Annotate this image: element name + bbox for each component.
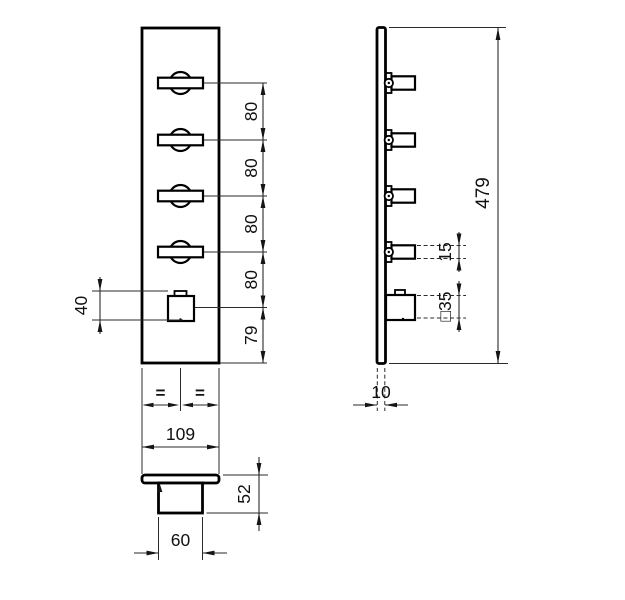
canvas-background — [0, 0, 625, 600]
dim-button-height: 40 — [71, 296, 91, 316]
knob-lever-side — [392, 189, 416, 202]
knob-lever — [158, 247, 203, 258]
knob-screw-dot — [388, 139, 390, 141]
dim-button-face: □35 — [435, 291, 455, 321]
knob-lever — [158, 191, 203, 202]
side-knob-4 — [385, 242, 415, 262]
side-knob-3 — [385, 186, 415, 206]
side-square-button — [386, 290, 415, 320]
dim-spacing-5: 79 — [241, 326, 261, 345]
dim-plate-width: 109 — [166, 424, 195, 444]
knob-lever-side — [392, 245, 416, 258]
dim-spacing-4: 80 — [241, 270, 261, 290]
dim-total-depth: 52 — [234, 484, 254, 503]
technical-drawing: 80 80 80 80 79 40 = = — [0, 0, 625, 600]
button-mark-side — [402, 318, 404, 320]
side-knob-1 — [385, 73, 415, 93]
knob-lever-side — [392, 133, 416, 146]
drawing-canvas: 80 80 80 80 79 40 = = — [0, 0, 625, 600]
dim-handle-depth: 15 — [435, 242, 455, 261]
dim-overall-height: 479 — [473, 177, 494, 209]
dim-plate-thickness: 10 — [371, 382, 391, 402]
side-knob-2 — [385, 130, 415, 150]
front-square-button — [168, 291, 194, 321]
equal-mark-right: = — [195, 384, 205, 403]
equal-mark-left: = — [156, 384, 166, 403]
knob-screw-dot — [388, 251, 390, 253]
knob-screw-dot — [388, 195, 390, 197]
button-body — [168, 296, 194, 321]
dim-button-width: 60 — [171, 530, 191, 550]
knob-lever-side — [392, 76, 416, 89]
dim-spacing-1: 80 — [241, 102, 261, 122]
dim-spacing-3: 80 — [241, 214, 261, 234]
button-body-side — [386, 295, 415, 320]
dim-spacing-2: 80 — [241, 158, 261, 178]
knob-screw-dot — [388, 82, 390, 84]
knob-lever — [158, 78, 203, 89]
knob-lever — [158, 135, 203, 146]
bottom-button-section — [159, 483, 203, 513]
